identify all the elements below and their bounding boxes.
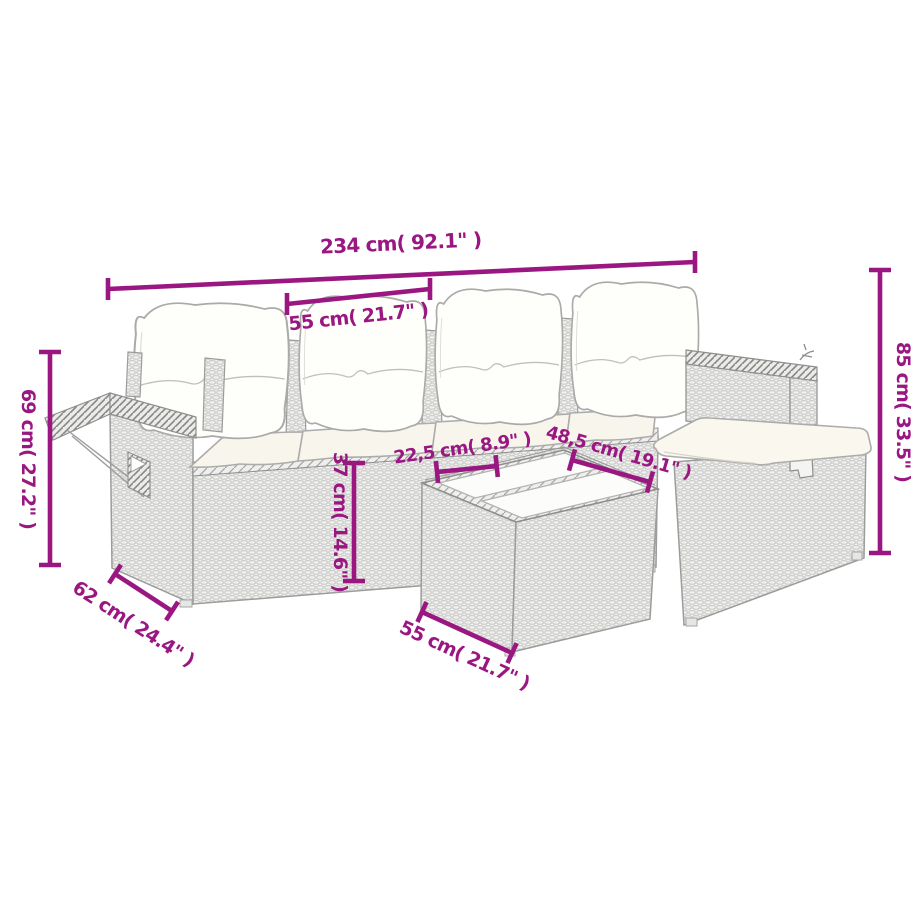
dim-left-height: 69 cm( 27.2" ) (17, 352, 61, 565)
product-dimension-image: 234 cm( 92.1" ) 55 cm( 21.7" ) 69 cm( 27… (0, 0, 920, 920)
tray-latch-detail (800, 344, 814, 360)
sofa-left-arm (110, 413, 193, 604)
dim-seat-height-label: 37 cm( 14.6" ) (329, 452, 351, 592)
table-illustration (421, 447, 658, 656)
ottoman-cushion (654, 418, 871, 465)
dim-overall-width-label: 234 cm( 92.1" ) (320, 227, 482, 258)
dim-right-height: 85 cm( 33.5" ) (869, 270, 914, 553)
ottoman-illustration (654, 418, 871, 626)
back-cushion-4 (571, 282, 698, 417)
dim-left-height-label: 69 cm( 27.2" ) (17, 389, 39, 529)
ottoman-box (674, 446, 866, 625)
dim-right-height-label: 85 cm( 33.5" ) (892, 342, 914, 482)
furniture-dimension-diagram: 234 cm( 92.1" ) 55 cm( 21.7" ) 69 cm( 27… (0, 0, 920, 920)
back-cushion-3 (435, 289, 562, 424)
